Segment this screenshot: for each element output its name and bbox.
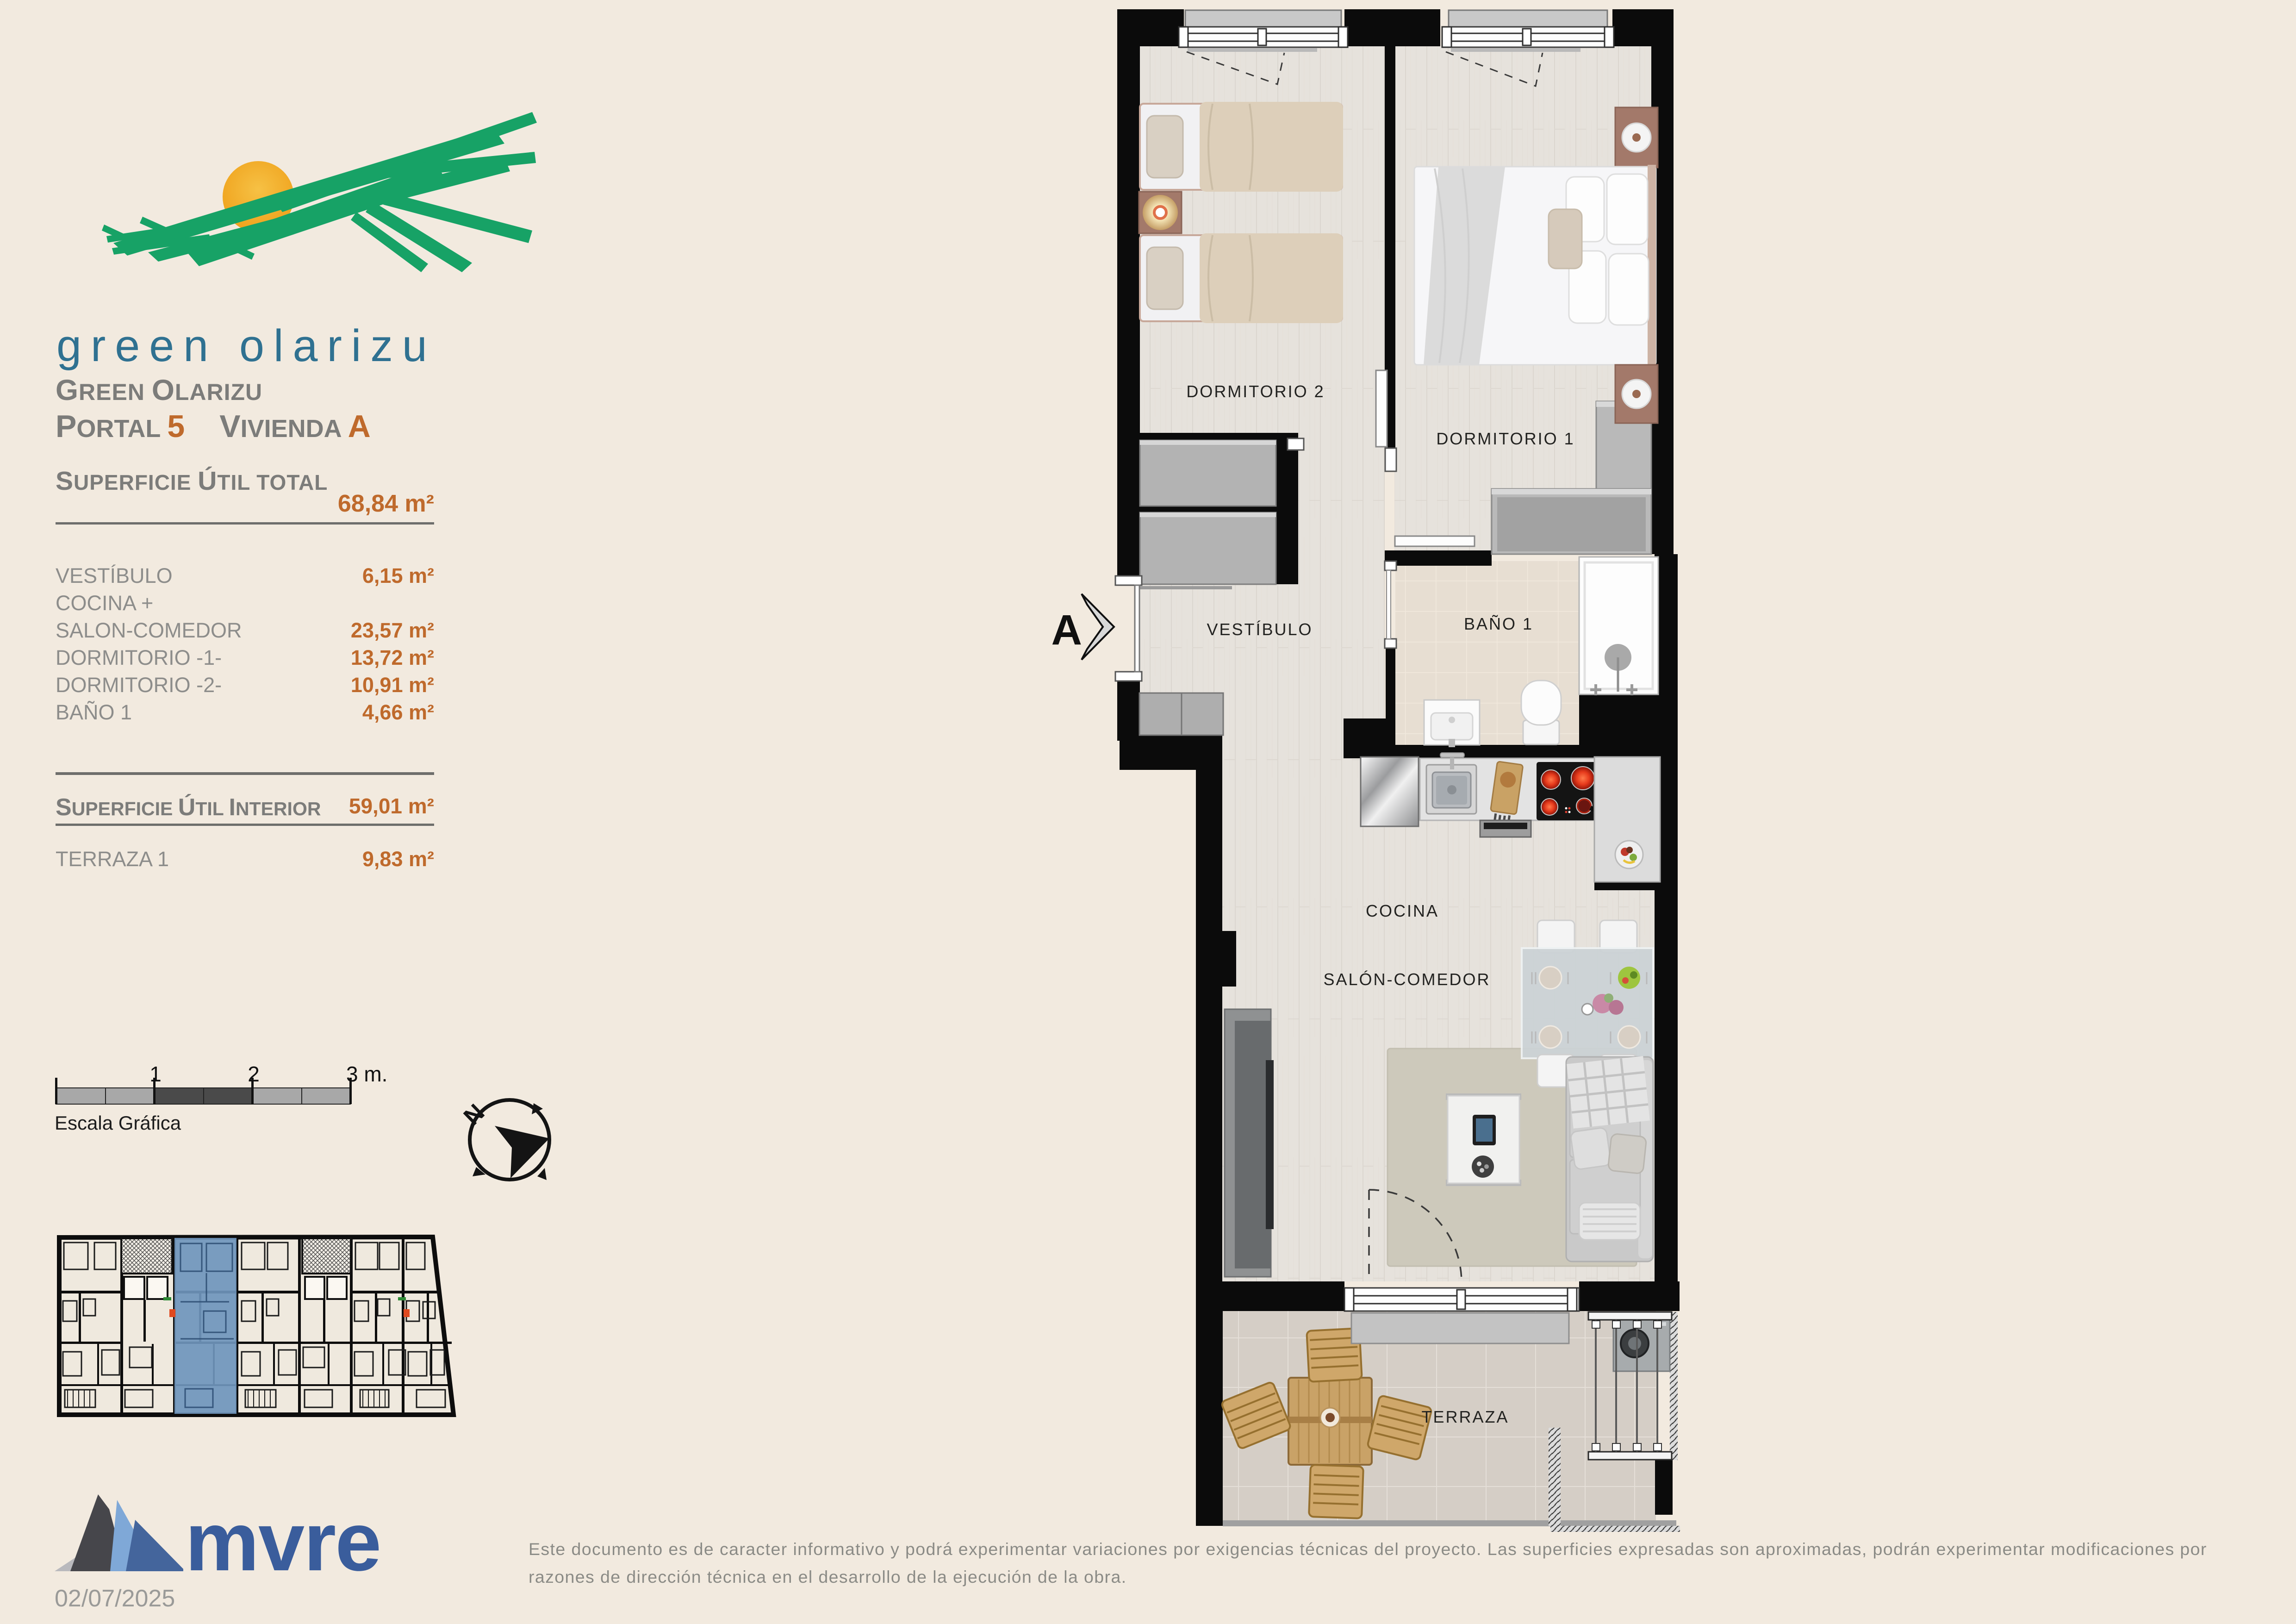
svg-text:BAÑO 1: BAÑO 1 [1464,614,1533,633]
svg-text:A: A [1052,606,1082,654]
svg-text:SALÓN-COMEDOR: SALÓN-COMEDOR [1323,970,1490,989]
svg-text:TERRAZA: TERRAZA [1421,1407,1509,1426]
svg-text:DORMITORIO 1: DORMITORIO 1 [1436,429,1574,448]
svg-text:VESTÍBULO: VESTÍBULO [1207,620,1313,639]
svg-text:DORMITORIO 2: DORMITORIO 2 [1186,382,1325,401]
svg-text:COCINA: COCINA [1366,901,1439,920]
